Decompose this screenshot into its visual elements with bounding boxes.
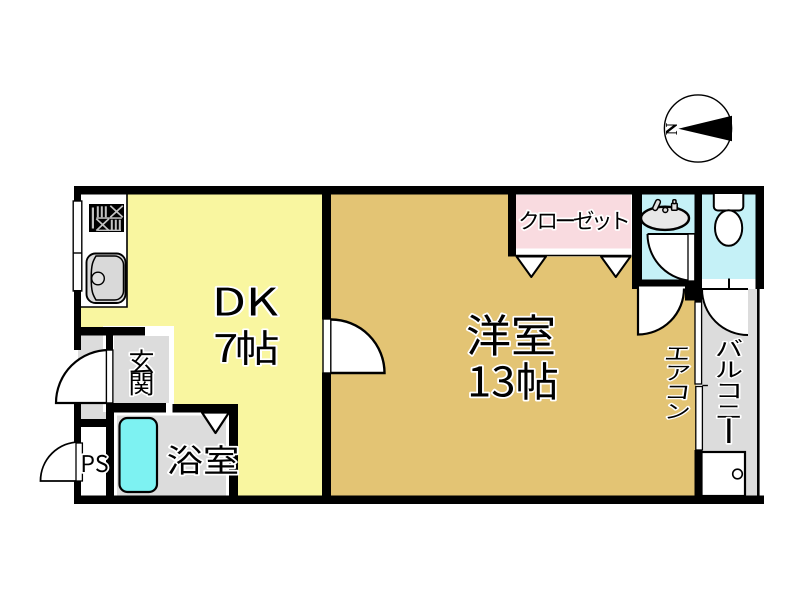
- svg-text:N: N: [662, 122, 681, 135]
